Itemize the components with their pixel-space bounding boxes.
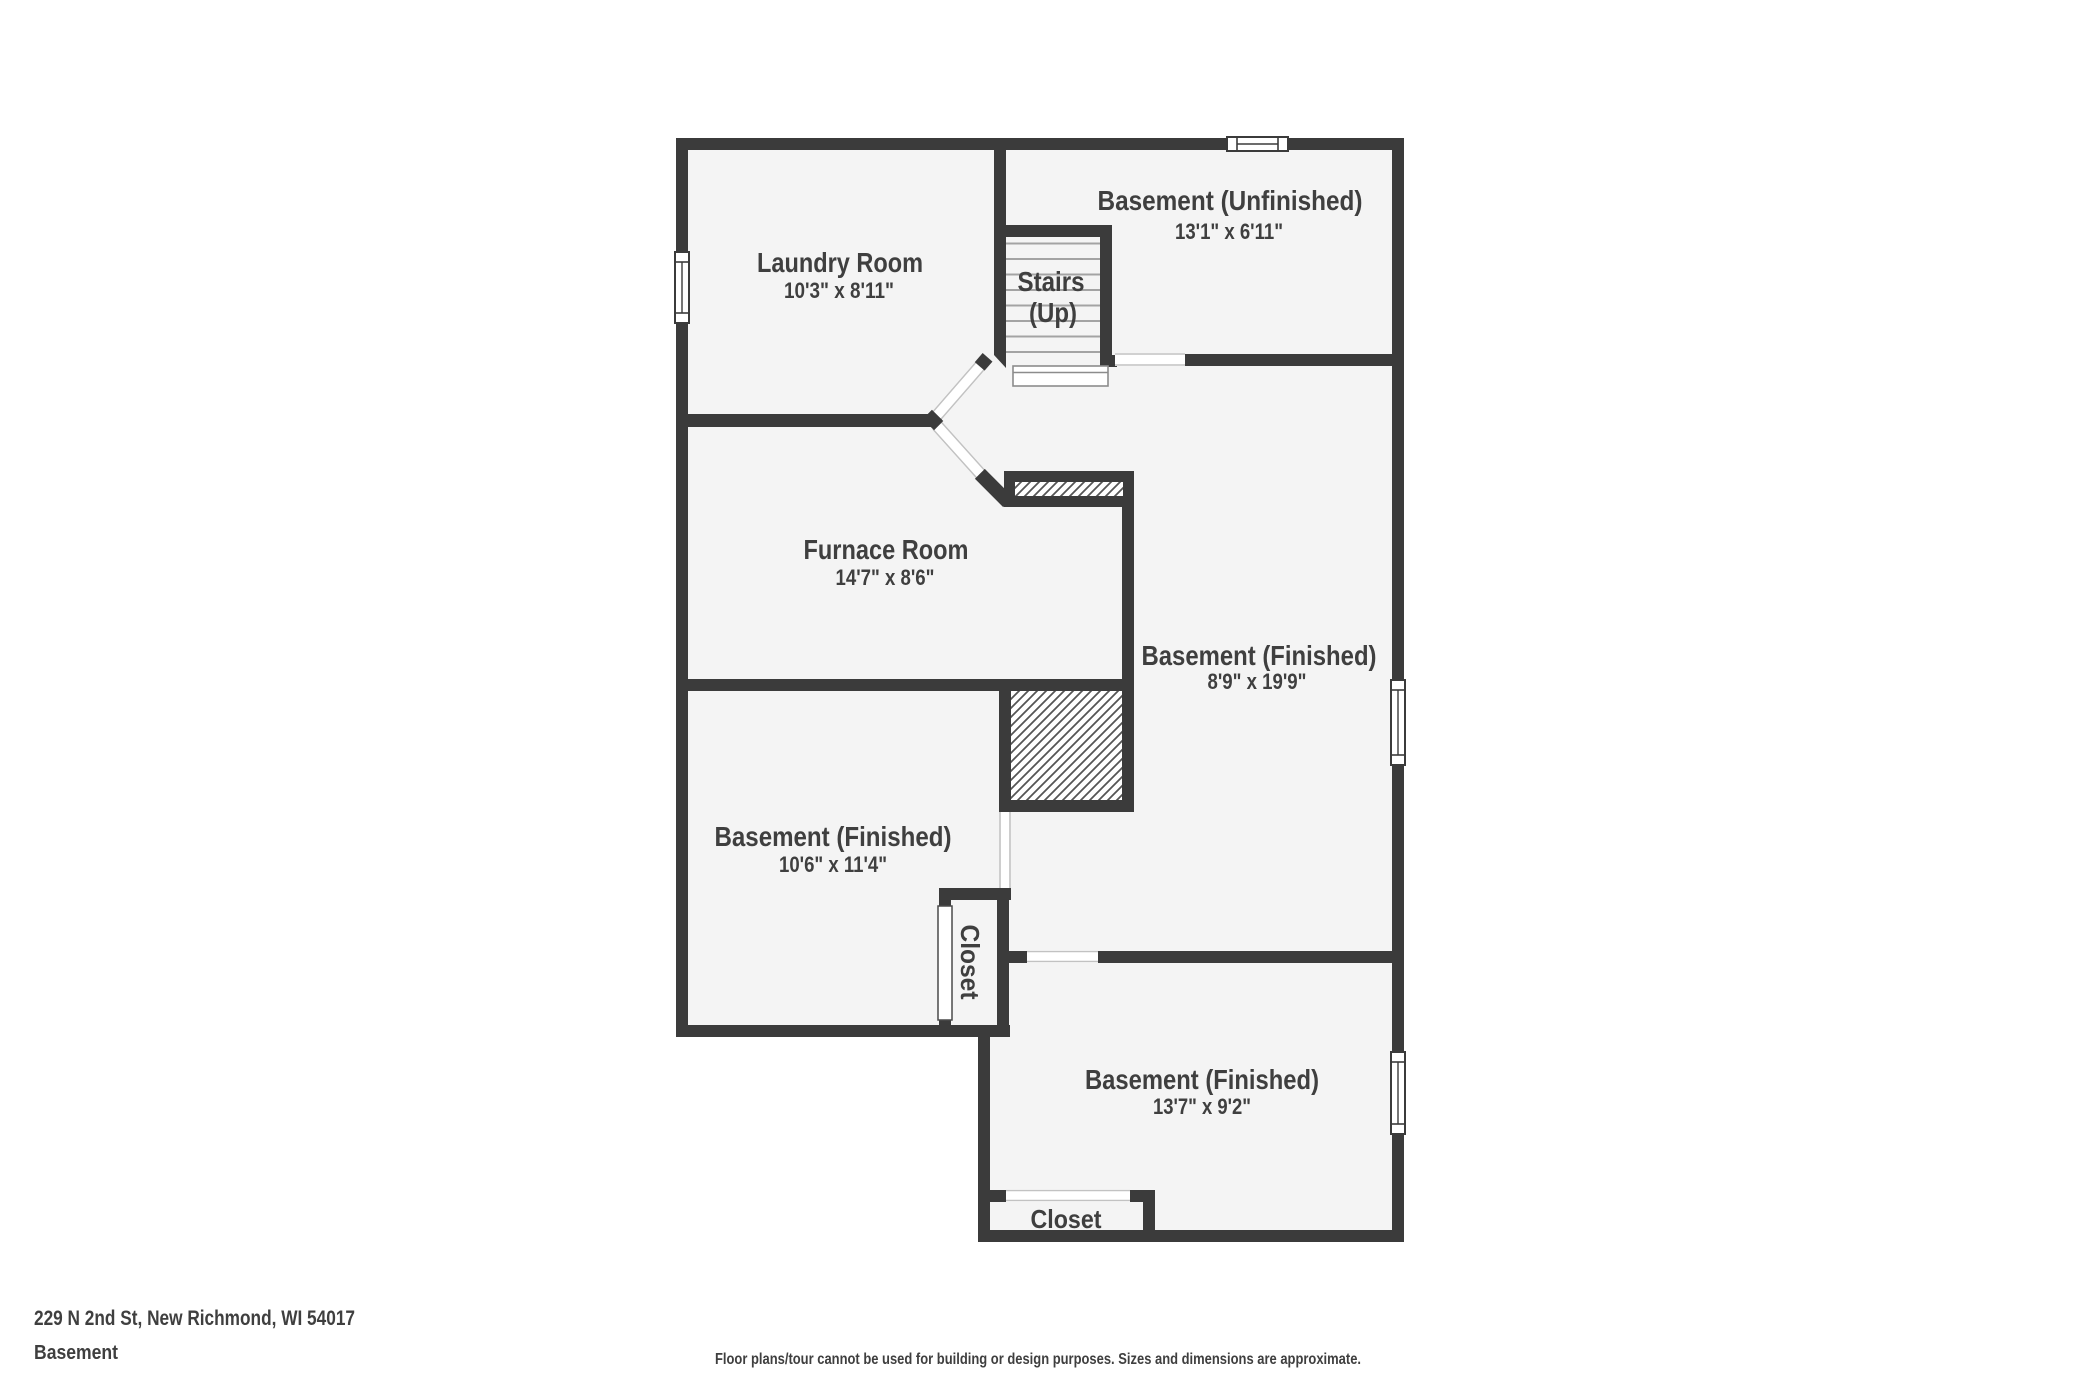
svg-text:10'3" x 8'11": 10'3" x 8'11" xyxy=(784,278,894,303)
svg-text:Closet: Closet xyxy=(1031,1204,1102,1234)
svg-text:Stairs: Stairs xyxy=(1018,266,1085,297)
svg-text:13'1" x 6'11": 13'1" x 6'11" xyxy=(1175,219,1283,244)
svg-text:Floor plans/tour cannot be use: Floor plans/tour cannot be used for buil… xyxy=(715,1351,1361,1368)
svg-text:Basement (Finished): Basement (Finished) xyxy=(1142,640,1377,671)
svg-text:229 N 2nd St, New Richmond, WI: 229 N 2nd St, New Richmond, WI 54017 xyxy=(34,1306,355,1330)
svg-text:8'9" x 19'9": 8'9" x 19'9" xyxy=(1208,669,1307,694)
svg-text:Closet: Closet xyxy=(955,925,985,1000)
svg-text:Laundry Room: Laundry Room xyxy=(757,247,923,278)
svg-text:(Up): (Up) xyxy=(1029,297,1077,328)
svg-text:Basement (Finished): Basement (Finished) xyxy=(1085,1064,1319,1095)
svg-text:Furnace Room: Furnace Room xyxy=(804,534,969,565)
svg-text:Basement (Unfinished): Basement (Unfinished) xyxy=(1098,185,1363,216)
svg-text:14'7" x 8'6": 14'7" x 8'6" xyxy=(836,565,935,590)
svg-text:10'6" x 11'4": 10'6" x 11'4" xyxy=(779,852,887,877)
svg-text:Basement (Finished): Basement (Finished) xyxy=(715,821,952,852)
svg-text:13'7" x 9'2": 13'7" x 9'2" xyxy=(1153,1094,1251,1119)
svg-text:Basement: Basement xyxy=(34,1342,118,1364)
